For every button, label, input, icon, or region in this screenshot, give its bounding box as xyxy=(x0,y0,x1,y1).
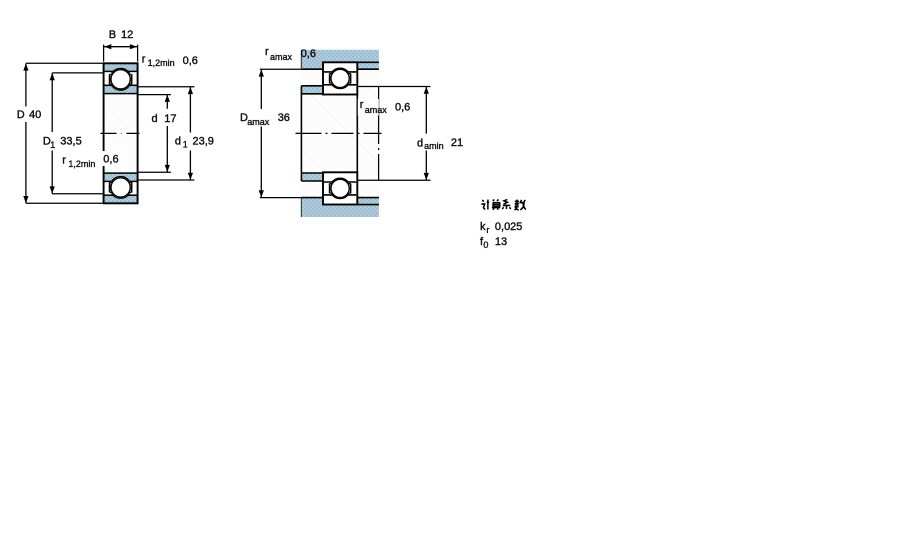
svg-text:1: 1 xyxy=(183,140,188,150)
svg-text:36: 36 xyxy=(278,112,290,124)
svg-text:1,2min: 1,2min xyxy=(68,159,95,169)
svg-text:r: r xyxy=(62,155,66,167)
svg-text:0: 0 xyxy=(483,240,488,250)
svg-text:1: 1 xyxy=(50,140,55,150)
svg-text:0,6: 0,6 xyxy=(183,55,198,67)
svg-text:r: r xyxy=(265,46,269,58)
svg-text:d: d xyxy=(152,113,158,125)
svg-text:40: 40 xyxy=(29,109,41,121)
svg-text:r: r xyxy=(142,53,146,65)
svg-text:B: B xyxy=(109,29,116,41)
svg-text:12: 12 xyxy=(121,29,133,41)
svg-text:0,6: 0,6 xyxy=(395,101,410,113)
svg-text:amax: amax xyxy=(270,52,293,62)
svg-text:d: d xyxy=(417,137,423,149)
svg-text:k: k xyxy=(480,221,486,233)
svg-text:23,9: 23,9 xyxy=(193,136,214,148)
svg-text:21: 21 xyxy=(451,137,463,149)
svg-text:d: d xyxy=(175,136,181,148)
svg-text:13: 13 xyxy=(495,236,507,248)
svg-text:0,6: 0,6 xyxy=(301,48,316,60)
svg-text:r: r xyxy=(360,99,364,111)
svg-text:1,2min: 1,2min xyxy=(148,58,175,68)
svg-text:amax: amax xyxy=(365,105,388,115)
svg-text:D: D xyxy=(17,109,25,121)
svg-text:amax: amax xyxy=(247,117,270,127)
svg-text:0,025: 0,025 xyxy=(495,221,523,233)
svg-text:33,5: 33,5 xyxy=(60,136,81,148)
svg-text:17: 17 xyxy=(164,113,176,125)
svg-text:r: r xyxy=(486,225,489,235)
svg-text:amin: amin xyxy=(424,141,444,151)
svg-text:0,6: 0,6 xyxy=(103,154,118,166)
